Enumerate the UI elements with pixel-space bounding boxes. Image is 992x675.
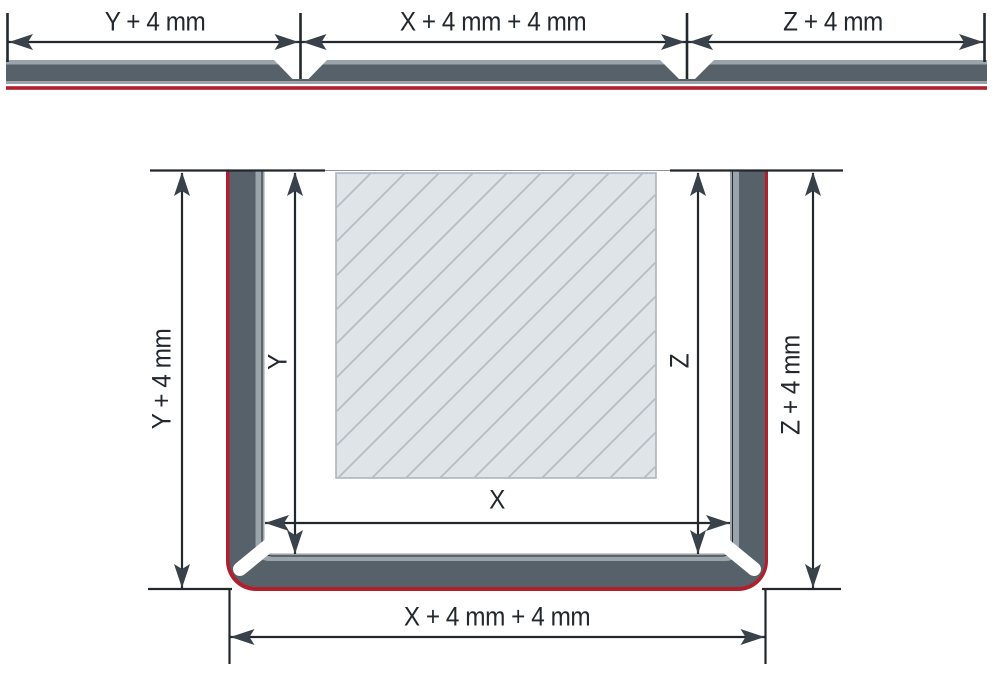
profile-dimension-diagram: Y + 4 mm X + 4 mm + 4 mm Z + 4 mm Y + 4 …	[0, 0, 992, 675]
dim-label-left-outer: Y + 4 mm	[149, 329, 176, 430]
dim-label-strip-right: Z + 4 mm	[783, 9, 883, 36]
dim-label-strip-left: Y + 4 mm	[105, 9, 206, 36]
hatched-panel	[336, 173, 656, 478]
dim-label-strip-middle: X + 4 mm + 4 mm	[400, 9, 586, 36]
dim-label-left-inner: Y	[265, 354, 292, 370]
dim-label-right-inner: Z	[667, 354, 694, 368]
dim-label-inner-width: X	[489, 487, 505, 514]
panel-hatching	[336, 173, 656, 478]
dim-label-outer-width: X + 4 mm + 4 mm	[404, 604, 590, 631]
dim-label-right-outer: Z + 4 mm	[778, 335, 805, 435]
strip-adhesive-layer	[6, 86, 987, 90]
strip-gap	[6, 84, 987, 86]
strip-body	[6, 65, 987, 82]
u-profile-diagram	[148, 171, 843, 665]
